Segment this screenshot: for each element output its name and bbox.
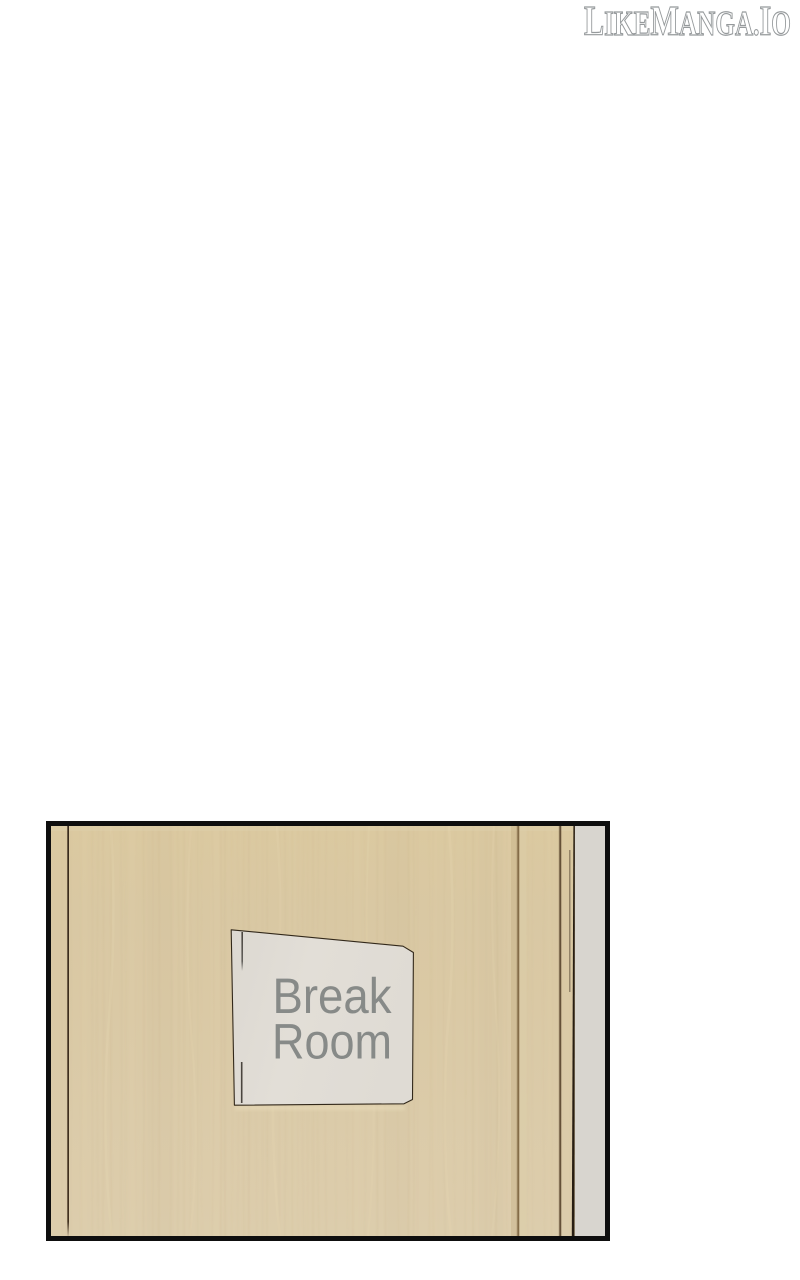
svg-text:Room: Room	[272, 1013, 392, 1069]
